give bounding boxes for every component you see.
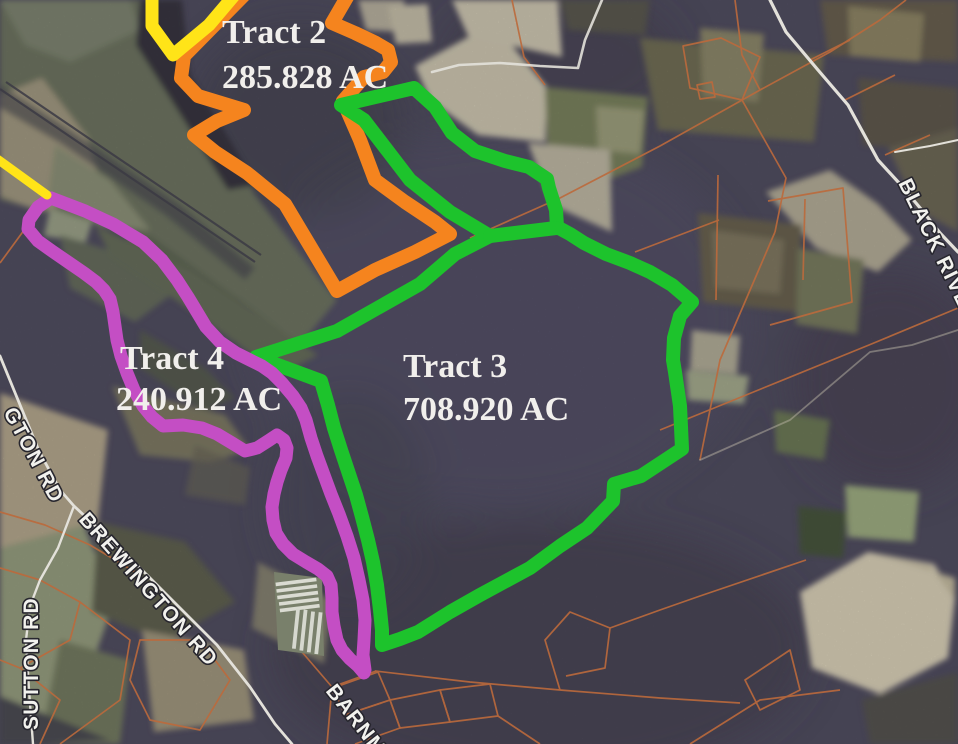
svg-text:Tract 4: Tract 4	[120, 340, 224, 377]
svg-text:Tract 2: Tract 2	[222, 14, 326, 51]
svg-text:285.828 AC: 285.828 AC	[222, 59, 388, 96]
svg-text:240.912 AC: 240.912 AC	[116, 381, 282, 418]
svg-text:SUTTON RD: SUTTON RD	[20, 597, 43, 730]
svg-text:708.920 AC: 708.920 AC	[403, 391, 569, 428]
svg-text:Tract 3: Tract 3	[403, 348, 507, 385]
